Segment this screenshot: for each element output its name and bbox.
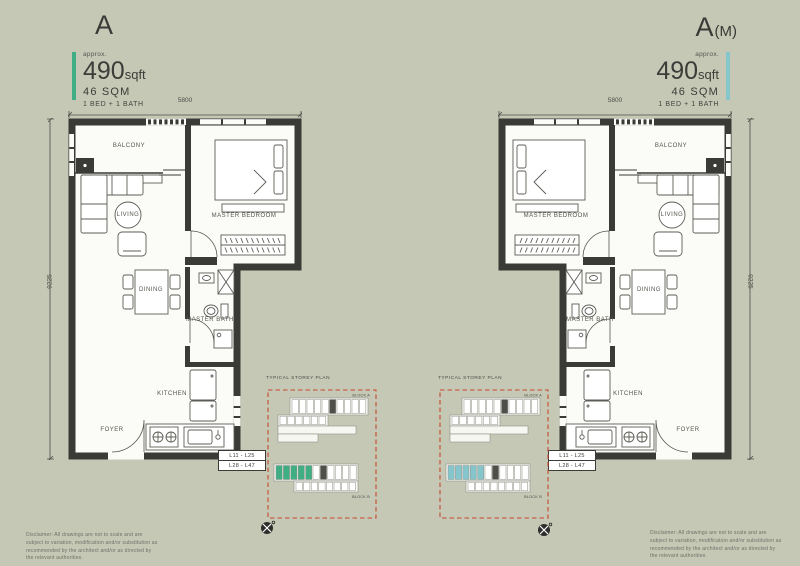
- wardrobe: [515, 235, 579, 255]
- room-label-master-bedroom: MASTER BEDROOM: [518, 212, 594, 221]
- room-label-dining: DINING: [121, 286, 181, 295]
- armchair: [118, 232, 146, 256]
- room-label-kitchen: KITCHEN: [132, 390, 212, 399]
- block-a-label: BLOCK A: [352, 394, 370, 398]
- area-sqft-value: 490: [656, 57, 698, 85]
- unit-am-title: A(M): [695, 12, 737, 43]
- room-label-master-bath: MASTER BATH: [180, 316, 240, 325]
- storey-plan-drawing: BLOCK A BLOCK B: [438, 388, 550, 520]
- accent-bar: [726, 52, 730, 100]
- wardrobe: [221, 235, 285, 255]
- height-dimension-value: 9225: [747, 262, 754, 302]
- typical-storey-plan-inset-am: TYPICAL STOREY PLAN BLOCK A BLOCK B: [438, 376, 550, 536]
- north-compass-icon: [260, 520, 276, 541]
- unit-a-letter: A: [95, 10, 114, 40]
- area-sqft-value: 490: [83, 57, 125, 85]
- inset-title: TYPICAL STOREY PLAN: [438, 376, 550, 381]
- level-range-1: L11 - L25: [219, 451, 265, 460]
- unit-a-title: A: [95, 10, 114, 41]
- inset-title: TYPICAL STOREY PLAN: [266, 376, 378, 381]
- level-legend: L11 - L25 L28 - L47: [548, 450, 596, 471]
- level-range-2: L28 - L47: [549, 460, 595, 470]
- level-legend: L11 - L25 L28 - L47: [218, 450, 266, 471]
- room-label-dining: DINING: [619, 286, 679, 295]
- width-dimension-value: 5800: [68, 97, 302, 104]
- block-b-label: BLOCK B: [352, 495, 370, 499]
- north-compass-icon: [537, 522, 553, 543]
- room-label-balcony: BALCONY: [621, 142, 721, 151]
- room-label-master-bath: MASTER BATH: [560, 316, 620, 325]
- disclaimer-left: Disclaimer: All drawings are not to scal…: [26, 532, 158, 563]
- room-label-foyer: FOYER: [658, 426, 718, 435]
- level-range-1: L11 - L25: [549, 451, 595, 460]
- width-dimension: 5800: [498, 105, 732, 113]
- area-sqft-unit: sqft: [698, 67, 719, 82]
- room-label-living: LIVING: [98, 211, 158, 220]
- area-sqft-unit: sqft: [125, 67, 146, 82]
- height-dimension: 9225: [746, 118, 754, 460]
- accent-bar: [72, 52, 76, 100]
- width-dimension: 5800: [68, 105, 302, 113]
- unit-am-letter: A: [695, 12, 714, 42]
- room-label-foyer: FOYER: [82, 426, 142, 435]
- height-dimension-value: 9225: [47, 262, 54, 302]
- storey-plan-drawing: BLOCK A BLOCK B: [266, 388, 378, 520]
- block-b-label: BLOCK B: [524, 495, 542, 499]
- unit-am-suffix: (M): [715, 23, 738, 40]
- room-label-living: LIVING: [642, 211, 702, 220]
- room-label-master-bedroom: MASTER BEDROOM: [206, 212, 282, 221]
- armchair: [654, 232, 682, 256]
- width-dimension-value: 5800: [498, 97, 732, 104]
- typical-storey-plan-inset-a: TYPICAL STOREY PLAN BLOCK A BLOCK B: [266, 376, 378, 536]
- disclaimer-right: Disclaimer: All drawings are not to scal…: [650, 530, 784, 561]
- floor-plan-sheet: A approx. 490sqft 46 SQM 1 BED + 1 BATH …: [0, 0, 800, 566]
- level-range-2: L28 - L47: [219, 460, 265, 470]
- room-label-balcony: BALCONY: [79, 142, 179, 151]
- height-dimension: 9225: [46, 118, 54, 460]
- room-label-kitchen: KITCHEN: [588, 390, 668, 399]
- block-a-label: BLOCK A: [524, 394, 542, 398]
